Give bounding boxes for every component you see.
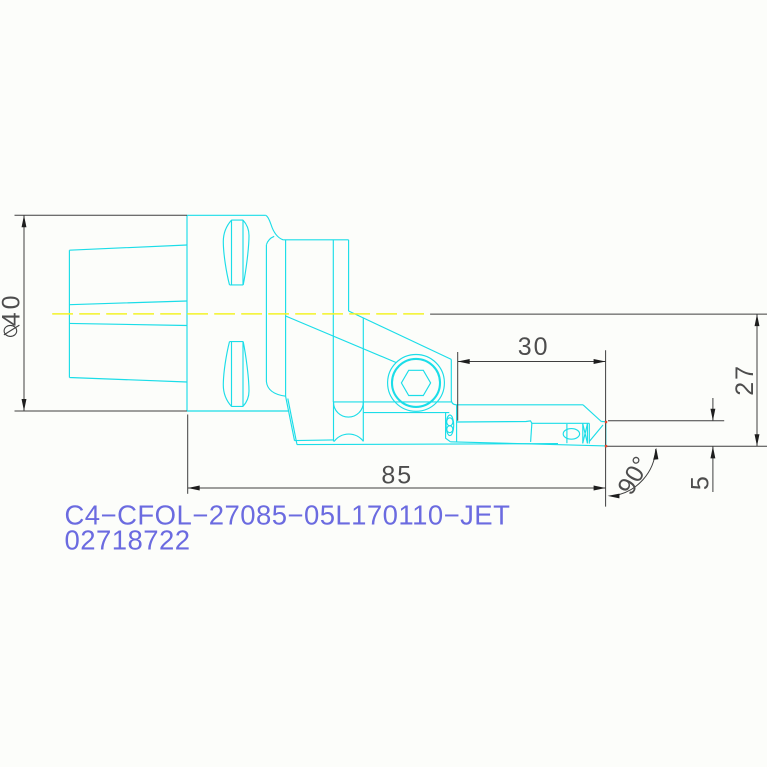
svg-text:02718722: 02718722 (65, 525, 191, 556)
svg-text:27: 27 (731, 364, 759, 396)
svg-text:30: 30 (518, 333, 550, 361)
svg-text:40: 40 (0, 292, 26, 326)
svg-text:5: 5 (687, 474, 715, 490)
svg-text:85: 85 (381, 462, 413, 490)
